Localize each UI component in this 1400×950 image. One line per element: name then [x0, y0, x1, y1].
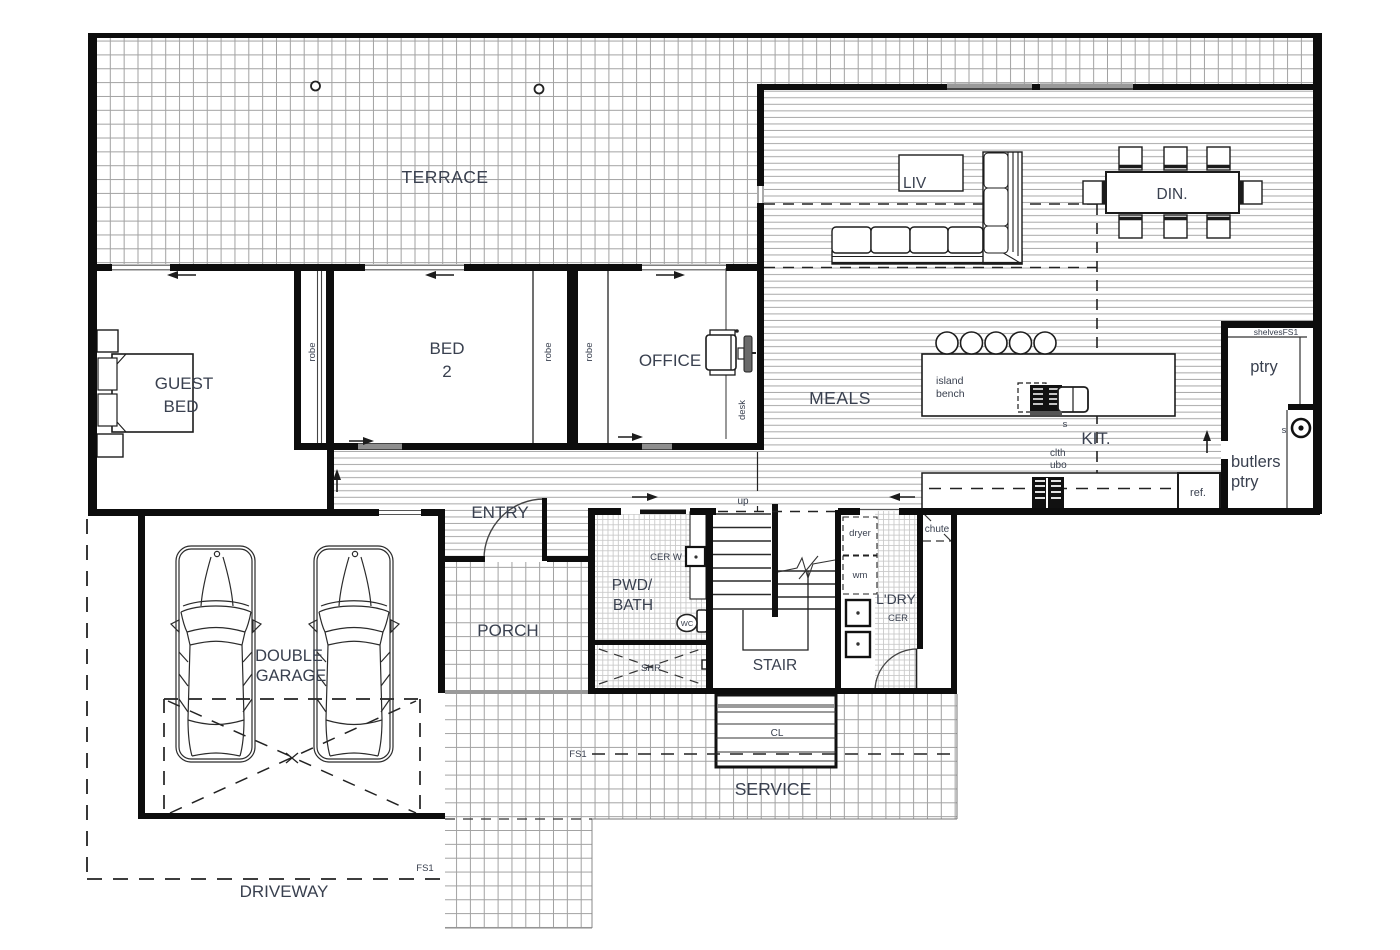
svg-text:butlers: butlers — [1231, 453, 1281, 471]
svg-text:chute: chute — [925, 524, 950, 535]
svg-text:PORCH: PORCH — [477, 621, 538, 640]
svg-text:DRIVEWAY: DRIVEWAY — [240, 882, 329, 901]
svg-text:wm: wm — [852, 570, 868, 581]
svg-text:ref.: ref. — [1190, 487, 1206, 499]
svg-text:WC: WC — [681, 619, 694, 628]
svg-text:ptry: ptry — [1250, 358, 1278, 376]
svg-text:KIT.: KIT. — [1081, 429, 1110, 448]
svg-text:robe: robe — [584, 342, 595, 361]
svg-text:SHR: SHR — [641, 663, 661, 674]
svg-text:SERVICE: SERVICE — [735, 779, 812, 799]
svg-text:STAIR: STAIR — [753, 657, 798, 674]
svg-text:robe: robe — [543, 342, 554, 361]
svg-text:s: s — [1282, 425, 1287, 436]
svg-text:shelvesFS1: shelvesFS1 — [1254, 327, 1299, 337]
svg-text:CL: CL — [771, 728, 784, 739]
svg-text:up: up — [737, 496, 749, 507]
svg-text:FS1: FS1 — [569, 749, 586, 760]
svg-text:OFFICE: OFFICE — [639, 351, 701, 370]
svg-text:ptry: ptry — [1231, 473, 1259, 491]
svg-text:dryer: dryer — [849, 528, 871, 539]
svg-text:ubo: ubo — [1050, 460, 1067, 471]
svg-text:BED: BED — [164, 397, 199, 416]
svg-text:GUEST: GUEST — [155, 374, 214, 393]
svg-text:DIN.: DIN. — [1157, 186, 1188, 203]
svg-text:desk: desk — [737, 400, 748, 420]
svg-text:MEALS: MEALS — [809, 388, 871, 408]
svg-text:2: 2 — [442, 362, 451, 381]
svg-text:island: island — [936, 375, 964, 387]
svg-text:FS1: FS1 — [416, 863, 433, 874]
svg-text:LIV: LIV — [903, 175, 927, 192]
svg-text:DOUBLE: DOUBLE — [255, 647, 323, 665]
svg-text:L'DRY: L'DRY — [876, 591, 916, 607]
svg-text:s: s — [1063, 419, 1068, 430]
svg-text:CER W: CER W — [650, 552, 682, 563]
svg-text:BED: BED — [430, 339, 465, 358]
svg-text:clth: clth — [1050, 448, 1066, 459]
svg-text:robe: robe — [307, 342, 318, 361]
svg-text:CER: CER — [888, 613, 908, 624]
svg-text:PWD/: PWD/ — [612, 577, 653, 594]
svg-text:TERRACE: TERRACE — [401, 167, 488, 187]
svg-text:ENTRY: ENTRY — [471, 503, 528, 522]
svg-text:BATH: BATH — [613, 597, 653, 614]
svg-text:GARAGE: GARAGE — [256, 667, 327, 685]
svg-text:bench: bench — [936, 388, 965, 400]
